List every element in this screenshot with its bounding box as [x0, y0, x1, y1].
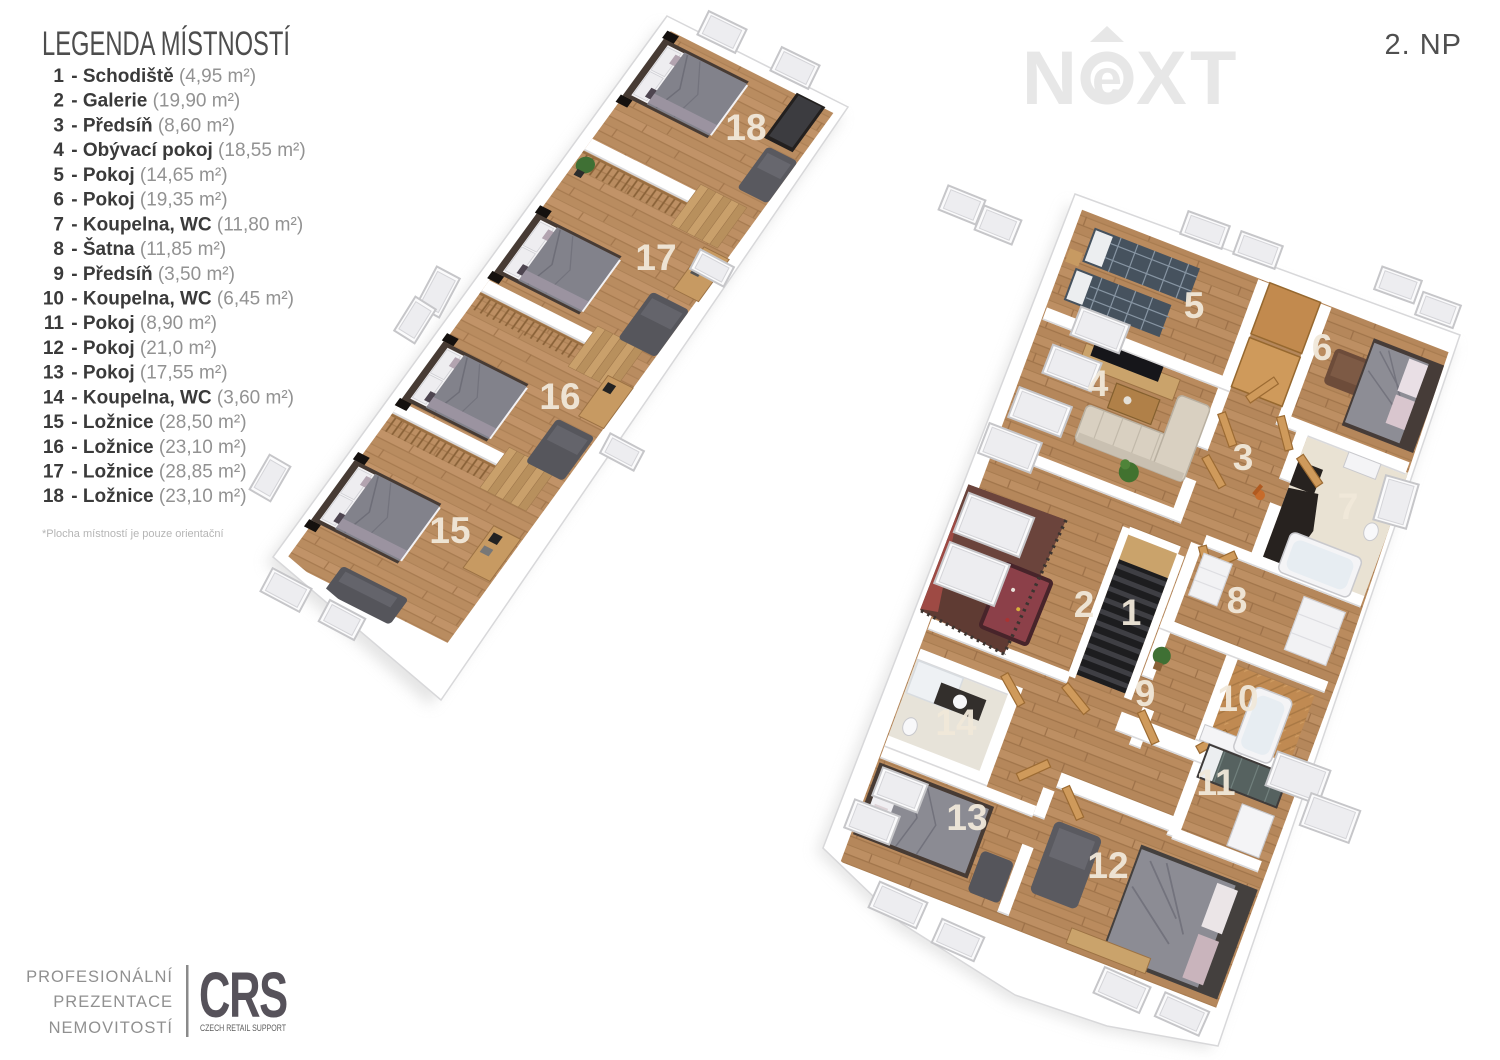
- svg-text:8: 8: [1227, 580, 1248, 621]
- svg-text:PROFESIONÁLNÍ: PROFESIONÁLNÍ: [26, 967, 173, 986]
- svg-text:CZECH RETAIL SUPPORT: CZECH RETAIL SUPPORT: [200, 1023, 286, 1033]
- svg-text:1: 1: [1121, 592, 1142, 633]
- svg-text:6: 6: [1312, 327, 1333, 368]
- svg-text:7: 7: [1338, 486, 1359, 527]
- svg-text:NEMOVITOSTÍ: NEMOVITOSTÍ: [49, 1018, 173, 1037]
- svg-text:17: 17: [635, 237, 676, 278]
- svg-text:10: 10: [1217, 678, 1258, 719]
- svg-text:18 - Ložnice (23,10 m²): 18 - Ložnice (23,10 m²): [43, 486, 247, 507]
- svg-text:5 - Pokoj (14,65 m²): 5 - Pokoj (14,65 m²): [53, 165, 227, 186]
- svg-text:LEGENDA MÍSTNOSTÍ: LEGENDA MÍSTNOSTÍ: [42, 25, 290, 63]
- svg-text:12 - Pokoj (21,0 m²): 12 - Pokoj (21,0 m²): [43, 338, 217, 359]
- svg-text:17 - Ložnice (28,85 m²): 17 - Ložnice (28,85 m²): [43, 462, 247, 483]
- svg-text:9: 9: [1135, 673, 1156, 714]
- svg-text:2: 2: [1074, 584, 1095, 625]
- svg-text:2. NP: 2. NP: [1384, 29, 1462, 61]
- svg-text:14: 14: [935, 702, 977, 743]
- svg-text:3 - Předsíň (8,60 m²): 3 - Předsíň (8,60 m²): [53, 115, 235, 136]
- svg-text:2 - Galerie (19,90 m²): 2 - Galerie (19,90 m²): [53, 91, 240, 112]
- svg-text:6 - Pokoj (19,35 m²): 6 - Pokoj (19,35 m²): [53, 190, 227, 211]
- svg-text:15: 15: [429, 510, 470, 551]
- svg-text:4 - Obývací pokoj (18,55 m²): 4 - Obývací pokoj (18,55 m²): [53, 140, 305, 161]
- svg-text:5: 5: [1184, 285, 1205, 326]
- svg-text:PREZENTACE: PREZENTACE: [53, 993, 173, 1011]
- svg-text:18: 18: [725, 107, 766, 148]
- svg-text:9 - Předsíň (3,50 m²): 9 - Předsíň (3,50 m²): [53, 264, 235, 285]
- svg-text:10 - Koupelna, WC (6,45 m²): 10 - Koupelna, WC (6,45 m²): [43, 289, 294, 310]
- svg-text:1 - Schodiště (4,95 m²): 1 - Schodiště (4,95 m²): [53, 66, 256, 87]
- svg-text:CRS: CRS: [199, 959, 287, 1032]
- svg-text:14 - Koupelna, WC (3,60 m²): 14 - Koupelna, WC (3,60 m²): [43, 387, 294, 408]
- svg-text:13: 13: [946, 797, 987, 838]
- svg-text:8 - Šatna (11,85 m²): 8 - Šatna (11,85 m²): [53, 238, 226, 260]
- svg-text:*Plocha místností je pouze ori: *Plocha místností je pouze orientační: [42, 528, 224, 540]
- svg-text:16 - Ložnice (23,10 m²): 16 - Ložnice (23,10 m²): [43, 437, 247, 458]
- svg-text:13 - Pokoj (17,55 m²): 13 - Pokoj (17,55 m²): [43, 363, 228, 384]
- svg-text:15 - Ložnice (28,50 m²): 15 - Ložnice (28,50 m²): [43, 412, 247, 433]
- svg-text:3: 3: [1233, 437, 1254, 478]
- svg-text:11: 11: [1196, 762, 1235, 803]
- svg-text:16: 16: [539, 376, 580, 417]
- svg-text:e: e: [1092, 49, 1122, 109]
- svg-text:11 - Pokoj (8,90 m²): 11 - Pokoj (8,90 m²): [44, 313, 217, 334]
- svg-text:7 - Koupelna, WC (11,80 m²): 7 - Koupelna, WC (11,80 m²): [53, 214, 303, 235]
- svg-text:12: 12: [1087, 845, 1128, 886]
- svg-text:T: T: [1190, 36, 1236, 121]
- svg-text:N: N: [1022, 36, 1077, 121]
- svg-text:4: 4: [1088, 363, 1109, 404]
- svg-text:X: X: [1136, 36, 1187, 121]
